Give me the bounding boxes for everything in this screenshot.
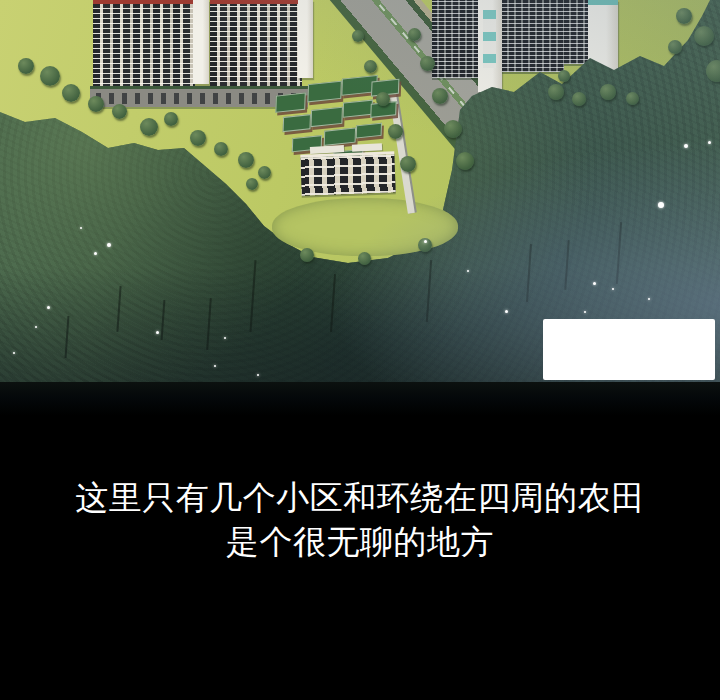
light-dot xyxy=(593,282,596,285)
light-dot xyxy=(708,141,711,144)
illustration-fade-edge xyxy=(0,382,720,416)
teal-window-panels xyxy=(483,10,496,68)
apartment-slab-left-b xyxy=(210,0,302,92)
light-dot xyxy=(13,352,15,354)
tree xyxy=(400,156,416,172)
stair-tower xyxy=(298,0,313,78)
low-rise-building xyxy=(307,81,341,103)
dialogue-text: 这里只有几个小区和环绕在四周的农田 是个很无聊的地方 xyxy=(0,476,720,564)
tree xyxy=(18,58,34,74)
tower-dark-c xyxy=(564,0,588,64)
tree xyxy=(62,84,80,102)
tree xyxy=(572,92,586,106)
tree xyxy=(300,248,314,262)
light-dot xyxy=(35,326,37,328)
tree xyxy=(444,120,462,138)
tree xyxy=(388,124,403,139)
low-rise-building xyxy=(283,114,311,132)
low-rise-building xyxy=(275,93,305,113)
light-dot xyxy=(80,227,82,229)
tree xyxy=(358,252,371,265)
light-dot xyxy=(257,374,259,376)
dialogue-line-2: 是个很无聊的地方 xyxy=(0,520,720,564)
light-dot xyxy=(648,298,650,300)
tree xyxy=(376,92,390,106)
tree xyxy=(668,40,682,54)
light-dot xyxy=(424,240,427,243)
light-dot xyxy=(612,288,614,290)
low-rise-building xyxy=(324,127,356,145)
light-dot xyxy=(156,331,159,334)
tree xyxy=(626,92,639,105)
light-dot xyxy=(94,252,97,255)
tree xyxy=(258,166,271,179)
tree xyxy=(456,152,474,170)
low-rise-building xyxy=(356,123,382,139)
tree xyxy=(676,8,692,24)
light-dot xyxy=(467,270,469,272)
light-dot xyxy=(214,365,216,367)
tree xyxy=(600,84,616,100)
tree xyxy=(694,26,714,46)
tree xyxy=(112,104,127,119)
low-rise-building xyxy=(311,107,343,128)
tree xyxy=(246,178,258,190)
tree xyxy=(88,96,104,112)
caption-box xyxy=(543,319,715,380)
tree xyxy=(352,30,364,42)
tree xyxy=(140,118,158,136)
light-dot xyxy=(684,144,688,148)
light-dot xyxy=(47,306,50,309)
midrise-building xyxy=(300,151,395,195)
light-dot xyxy=(584,311,586,313)
light-dot xyxy=(505,310,508,313)
apartment-slab-left-a xyxy=(93,0,195,94)
low-rise-building xyxy=(343,100,373,118)
tower-dark-b xyxy=(502,0,564,72)
tree xyxy=(558,70,570,82)
tree xyxy=(40,66,60,86)
dialogue-line-1: 这里只有几个小区和环绕在四周的农田 xyxy=(0,476,720,520)
tree xyxy=(190,130,206,146)
stair-tower xyxy=(193,0,209,84)
tree xyxy=(408,28,421,41)
tree xyxy=(164,112,178,126)
tree xyxy=(420,56,435,71)
tree xyxy=(548,84,564,100)
tower-dark-a xyxy=(432,0,478,78)
tree xyxy=(214,142,228,156)
light-dot xyxy=(107,243,111,247)
light-dot xyxy=(224,337,226,339)
light-dot xyxy=(658,202,664,208)
tree xyxy=(238,152,254,168)
tower-white-teal xyxy=(478,0,502,92)
comic-panel: 这里只有几个小区和环绕在四周的农田 是个很无聊的地方 xyxy=(0,0,720,700)
tree xyxy=(432,88,448,104)
tree xyxy=(364,60,377,73)
